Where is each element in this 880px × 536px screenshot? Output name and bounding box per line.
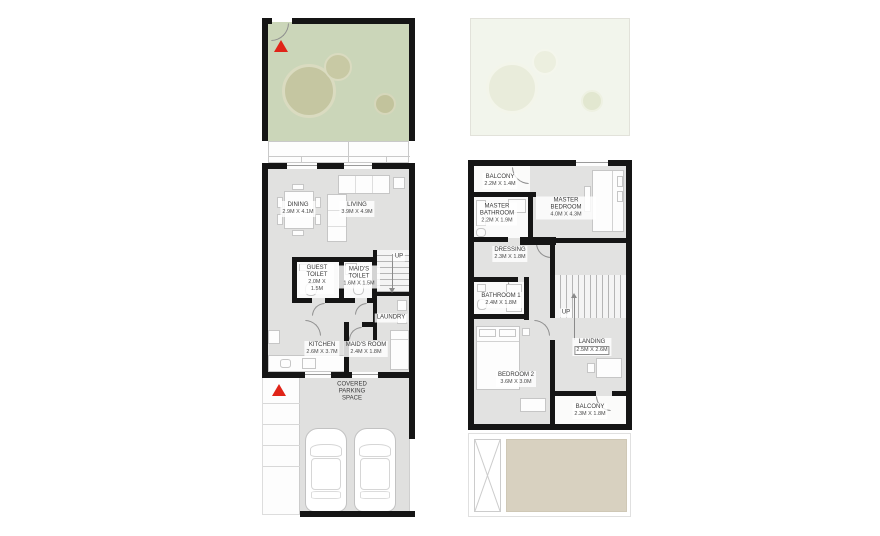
bathroom1-wall xyxy=(468,277,518,282)
patio-divider xyxy=(348,142,349,164)
room-name: GUEST TOILET xyxy=(302,265,332,279)
sink xyxy=(477,284,486,292)
garden-wall-top xyxy=(292,18,415,24)
room-dims: 4.0M X 4.3M xyxy=(550,212,581,219)
terrace-area xyxy=(468,433,631,517)
car-windshield xyxy=(310,444,342,457)
pillow xyxy=(617,191,623,202)
car-icon xyxy=(354,428,396,512)
tree-icon xyxy=(374,93,396,115)
car-roof xyxy=(360,458,390,490)
fridge xyxy=(268,330,280,344)
kitchen-sink xyxy=(280,359,291,368)
room-name: LIVING xyxy=(347,202,367,209)
room-name: MASTER BEDROOM xyxy=(538,198,594,212)
stair-arrow-icon xyxy=(389,288,395,293)
room-dims: 2.9M X 4.1M xyxy=(282,209,313,216)
balcony-wall xyxy=(612,391,632,396)
side-table xyxy=(393,177,405,189)
room-dims: 3.6M X 3.0M xyxy=(500,379,531,386)
tree-faded-icon xyxy=(532,49,558,75)
room-name: BATHROOM 1 xyxy=(481,293,520,300)
nightstand xyxy=(522,328,530,336)
stairwell-wall xyxy=(550,243,555,318)
maids-bed xyxy=(390,330,409,370)
room-dims: 2.4M X 1.8M xyxy=(485,300,516,307)
toilet-wall xyxy=(292,257,377,262)
room-name: BALCONY xyxy=(576,404,605,411)
room-label-guest-toilet: GUEST TOILET 2.0M X 1.5M xyxy=(300,264,334,294)
room-label-bedroom-2: BEDROOM 2 3.6M X 3.0M xyxy=(496,371,536,387)
interior-wall-top xyxy=(262,163,415,169)
room-dims: 3.9M X 4.9M xyxy=(341,209,372,216)
room-name: MAID'S ROOM xyxy=(346,342,386,349)
bed-line xyxy=(612,171,613,231)
interior-wall-left xyxy=(262,169,268,377)
room-dims: 2.5M X 2.6M xyxy=(574,346,609,355)
wall-left xyxy=(468,160,474,430)
dining-chair xyxy=(315,197,321,208)
parking-wall-right xyxy=(409,377,415,439)
garden-wall-right xyxy=(409,18,415,141)
room-label-maids-toilet: MAID'S TOILET 1.6M X 1.5M xyxy=(338,266,380,289)
pergola-strip xyxy=(474,439,501,512)
room-dims: 2.0M X 1.5M xyxy=(302,279,332,293)
room-name: BEDROOM 2 xyxy=(498,372,534,379)
balcony-wall xyxy=(468,192,536,197)
stair-arrow-icon xyxy=(571,293,577,298)
room-label-living: LIVING 3.9M X 4.9M xyxy=(339,201,374,217)
room-name: DINING xyxy=(288,202,309,209)
car-roof xyxy=(311,458,341,490)
hall-wall xyxy=(552,238,632,243)
pillow xyxy=(499,329,516,337)
tree-faded-icon xyxy=(486,62,538,114)
room-dims: 2.2M X 1.4M xyxy=(484,181,515,188)
room-label-dressing: DRESSING 2.3M X 1.8M xyxy=(492,246,527,262)
garden-wall-left xyxy=(262,18,268,141)
dining-chair xyxy=(315,214,321,225)
balcony-wall xyxy=(550,391,596,396)
room-dims: 2.6M X 3.7M xyxy=(306,349,337,356)
door-to-parking xyxy=(352,372,378,378)
window xyxy=(576,160,608,166)
chair xyxy=(587,363,595,373)
room-label-parking: COVERED PARKING SPACE xyxy=(326,381,378,404)
pillow xyxy=(479,329,496,337)
dining-chair xyxy=(292,184,304,190)
first-floor-plan: BALCONY 2.2M X 1.4M MASTER BEDROOM 4.0M … xyxy=(0,0,880,536)
room-dims: 2.3M X 1.8M xyxy=(494,254,525,261)
dining-chair xyxy=(292,230,304,236)
stair-direction-line xyxy=(574,298,575,340)
room-label-landing: LANDING 2.5M X 2.6M xyxy=(572,338,611,356)
stairs-up-label: UP xyxy=(560,309,572,318)
car-windshield xyxy=(359,444,391,457)
toilet-wall xyxy=(292,298,312,303)
floorplan-page: { "colors": { "wall": "#151515", "interi… xyxy=(0,0,880,536)
car-icon xyxy=(305,428,347,512)
room-dims: 2.2M X 1.9M xyxy=(481,218,512,225)
washer xyxy=(397,300,407,311)
room-label-kitchen: KITCHEN 2.6M X 3.7M xyxy=(304,341,339,357)
room-label-bathroom-1: BATHROOM 1 2.4M X 1.8M xyxy=(479,292,522,308)
stairs-up-text: UP xyxy=(562,310,570,317)
room-name: COVERED PARKING SPACE xyxy=(328,382,376,403)
room-label-balcony-top: BALCONY 2.2M X 1.4M xyxy=(482,173,517,189)
room-label-maids-room: MAID'S ROOM 2.4M X 1.8M xyxy=(344,341,388,357)
room-name: LANDING xyxy=(579,339,606,346)
room-name: MAID'S TOILET xyxy=(340,267,378,281)
window xyxy=(344,163,372,169)
entrance-marker-icon xyxy=(272,384,286,396)
room-name: MASTER BATHROOM xyxy=(479,204,515,218)
walkway xyxy=(262,377,300,515)
dresser xyxy=(520,398,546,412)
sand-terrace xyxy=(506,439,627,512)
toilet-wall xyxy=(292,257,297,303)
toilet-wall xyxy=(325,298,355,303)
room-dims: 1.6M X 1.5M xyxy=(343,281,374,288)
tree-faded-icon xyxy=(581,90,603,112)
interior-wall-bottom xyxy=(262,372,415,378)
pillow xyxy=(617,176,623,187)
interior-wall-right xyxy=(409,169,415,377)
bed-line xyxy=(477,341,519,342)
toilet-wc xyxy=(476,228,486,237)
sofa xyxy=(338,175,390,194)
window xyxy=(287,163,317,169)
stairs-up-label: UP xyxy=(393,253,405,262)
room-label-balcony-bottom: BALCONY 2.3M X 1.8M xyxy=(572,403,607,419)
door-to-parking xyxy=(305,372,331,378)
room-name: DRESSING xyxy=(494,247,525,254)
room-dims: 2.4M X 1.8M xyxy=(350,349,381,356)
room-label-master-bathroom: MASTER BATHROOM 2.2M X 1.9M xyxy=(477,203,517,226)
bathroom-wall xyxy=(468,237,508,242)
car-rear-window xyxy=(311,491,341,499)
patio-step-line xyxy=(269,156,410,157)
tree-icon xyxy=(324,53,352,81)
room-name: LAUNDRY xyxy=(377,315,406,322)
desk xyxy=(596,358,622,378)
room-name: BALCONY xyxy=(486,174,515,181)
wall-right xyxy=(626,160,632,430)
room-dims: 2.3M X 1.8M xyxy=(574,411,605,418)
room-label-dining: DINING 2.9M X 4.1M xyxy=(280,201,315,217)
stairwell-wall xyxy=(550,340,555,430)
cross-brace-icon xyxy=(475,440,500,511)
stove xyxy=(302,358,316,369)
room-label-laundry: LAUNDRY xyxy=(375,314,408,323)
car-rear-window xyxy=(360,491,390,499)
maids-room-wall xyxy=(362,322,377,327)
parking-wall-bottom xyxy=(300,511,415,517)
bathroom1-wall xyxy=(468,314,529,319)
room-name: KITCHEN xyxy=(309,342,335,349)
stairs-up-text: UP xyxy=(395,254,403,261)
patio-strip xyxy=(268,141,409,163)
entrance-marker-icon xyxy=(274,40,288,52)
room-label-master-bedroom: MASTER BEDROOM 4.0M X 4.3M xyxy=(536,197,596,220)
bed-pillow-line xyxy=(391,339,408,340)
